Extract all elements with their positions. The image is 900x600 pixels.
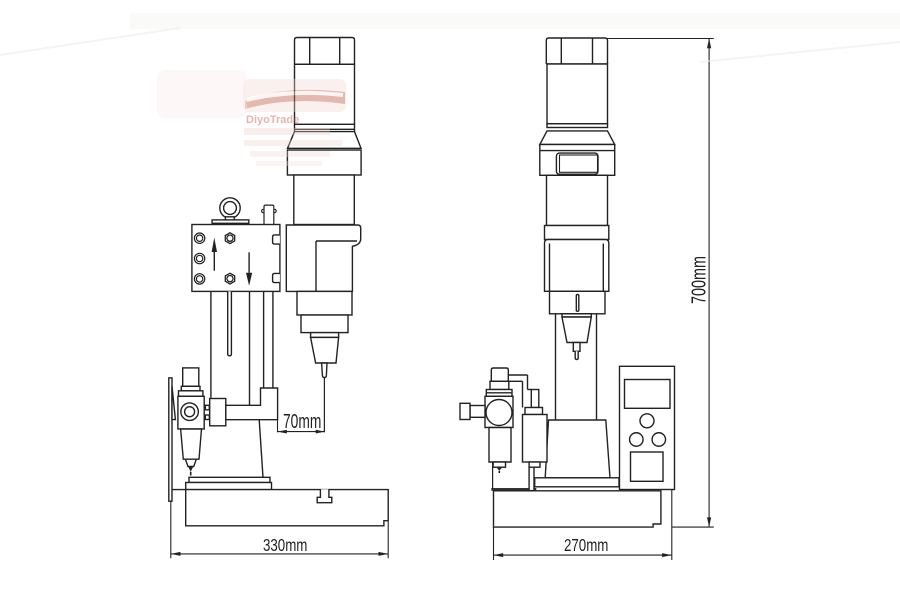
svg-text:70mm: 70mm <box>283 409 321 432</box>
svg-text:DiyoTrade: DiyoTrade <box>246 114 299 126</box>
svg-text:270mm: 270mm <box>564 536 608 555</box>
svg-text:330mm: 330mm <box>263 536 307 555</box>
svg-text:700mm: 700mm <box>687 256 710 304</box>
